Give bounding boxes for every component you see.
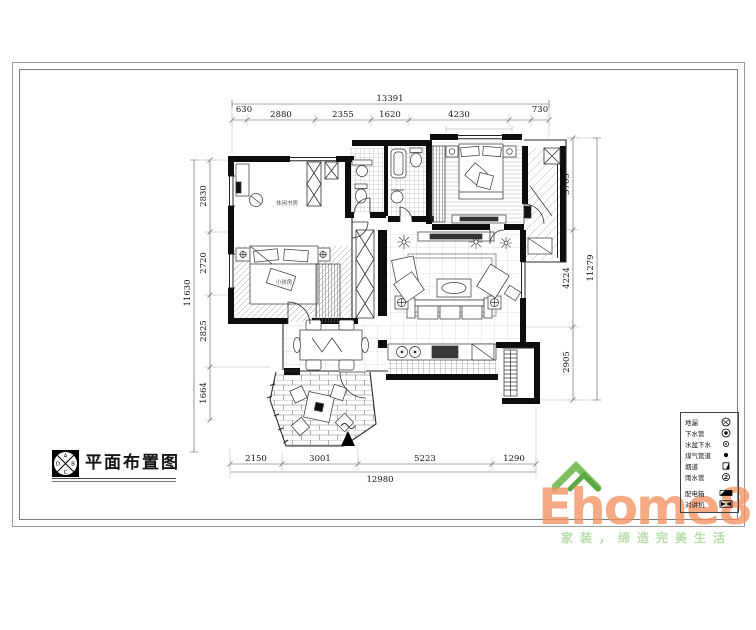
distribution-box-icon (718, 488, 734, 498)
tv (430, 234, 482, 239)
legend-item-distribution-box: 配电箱 (681, 487, 738, 498)
dim-left-1: 2720 (199, 252, 209, 274)
legend-item-floor-drain: 地漏 (681, 416, 738, 427)
legend-label: 对讲机 (685, 499, 705, 509)
dim-bottom-0: 2150 (245, 454, 267, 464)
drain-pipe-icon (718, 428, 734, 438)
master-wardrobe (432, 146, 445, 222)
dim-bottom-total: 12980 (366, 475, 393, 485)
dim-bottom-1: 3001 (309, 454, 331, 464)
dim-right-2: 2905 (562, 351, 572, 373)
legend-label: 下水管 (685, 428, 705, 438)
watermark-tagline: 家装，缔造完美生活 (561, 529, 732, 546)
logo-letter-a: A (64, 454, 68, 460)
intercom-icon (718, 499, 734, 509)
legend-label: 地漏 (685, 417, 698, 427)
sofa (407, 298, 492, 319)
dim-left-2: 2825 (199, 320, 209, 342)
logo-letter-d: D (56, 462, 60, 468)
legend-item-rain-pipe: 雨水管 (681, 471, 738, 482)
stove (432, 346, 458, 358)
flue-icon (718, 461, 734, 471)
kitchen-floor (388, 360, 496, 375)
title-underline-2 (52, 481, 176, 482)
legend-label: 配电箱 (685, 488, 705, 498)
utility-items (504, 350, 517, 396)
legend-item-drain-pipe: 下水管 (681, 427, 738, 438)
small-bath-floor (349, 148, 383, 212)
dim-left-3: 1664 (199, 382, 209, 404)
dim-top-2: 2355 (332, 110, 354, 120)
study-furniture (236, 164, 263, 207)
dining-table (300, 330, 362, 360)
dim-top-3: 1620 (379, 110, 401, 120)
company-logo: A B C D (52, 450, 79, 477)
legend-item-basin-drain: 水盆下水 (681, 438, 738, 449)
room-label-study: 休闲书房 (276, 199, 299, 207)
basin-drain-icon (718, 439, 734, 449)
legend-item-intercom: 对讲机 (681, 498, 738, 509)
legend-label: 雨水管 (685, 472, 705, 482)
dim-top-5: 730 (532, 105, 548, 115)
dim-top-1: 2880 (270, 110, 292, 120)
dim-top-total: 13391 (376, 94, 403, 104)
floor-drain-icon (718, 417, 734, 427)
logo-letter-b: B (71, 462, 75, 468)
dim-bottom-3: 1290 (503, 454, 525, 464)
dim-top-4: 4230 (448, 110, 470, 120)
legend-label: 烟道 (685, 461, 698, 471)
sheet-title: 平面布置图 (85, 450, 180, 476)
dim-right-total: 11279 (586, 254, 596, 281)
dim-bottom-2: 5223 (414, 454, 436, 464)
legend-label: 水盆下水 (685, 439, 711, 449)
legend-item-flue: 烟道 (681, 460, 738, 471)
kids-wardrobe (316, 264, 340, 322)
logo-letter-c: C (64, 470, 68, 476)
dim-left-total: 11630 (183, 279, 193, 306)
gas-pipe-icon (718, 450, 734, 460)
room-label-kids-bedroom: 小孩房 (276, 278, 293, 286)
legend-item-gas-pipe: 煤气管道 (681, 449, 738, 460)
rain-pipe-icon (718, 472, 734, 482)
drawing-sheet: Ehome8 家装，缔造完美生活 (0, 0, 756, 630)
dim-right-0: 3705 (562, 173, 572, 195)
legend-label: 煤气管道 (685, 450, 711, 460)
dim-top-0: 630 (236, 105, 252, 115)
title-underline (52, 478, 176, 479)
kitchen-furniture (388, 344, 496, 360)
dim-left-0: 2830 (199, 185, 209, 207)
legend-box: 地漏 下水管 水盆下水 煤气管道 (680, 412, 739, 513)
dim-right-1: 4224 (562, 267, 572, 289)
title-block: A B C D 平面布置图 (52, 450, 180, 477)
